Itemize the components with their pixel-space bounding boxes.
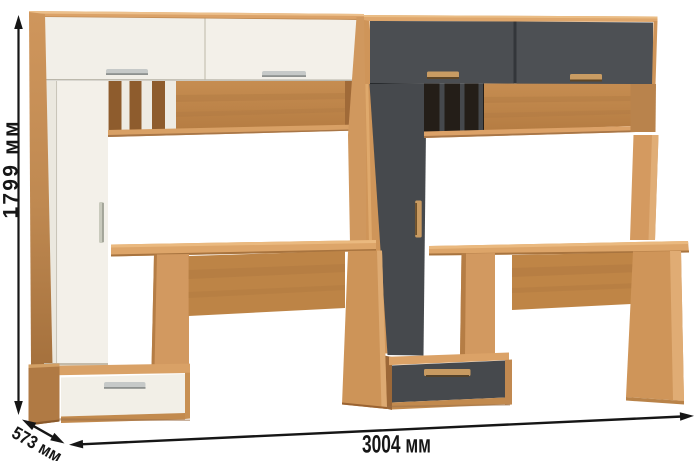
svg-text:1799 мм: 1799 мм (0, 122, 23, 219)
svg-text:3004 мм: 3004 мм (362, 431, 431, 459)
